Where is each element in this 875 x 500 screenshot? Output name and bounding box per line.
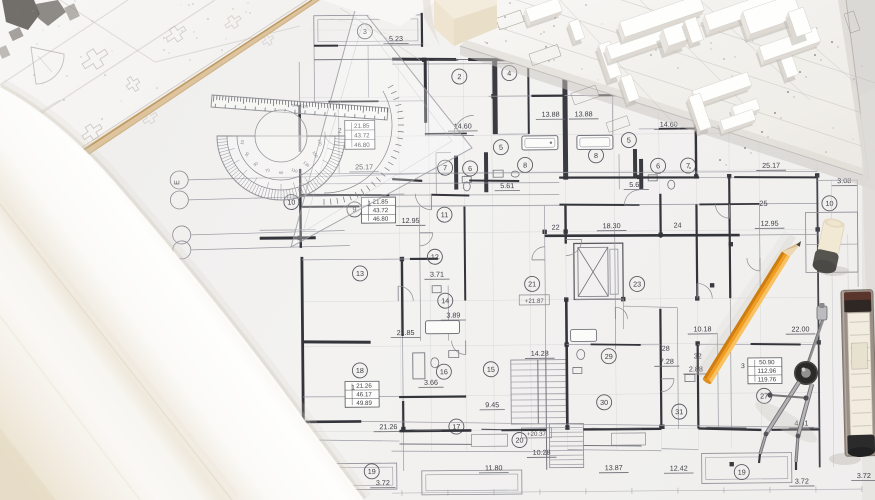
- svg-text:25.17: 25.17: [762, 161, 780, 170]
- svg-text:22.00: 22.00: [791, 324, 809, 333]
- svg-text:24: 24: [674, 221, 682, 230]
- svg-text:50.90: 50.90: [759, 359, 775, 366]
- svg-text:19: 19: [738, 468, 746, 477]
- svg-text:16: 16: [440, 367, 448, 376]
- svg-text:8: 8: [594, 151, 598, 160]
- svg-text:14: 14: [441, 296, 449, 305]
- svg-text:112.96: 112.96: [758, 368, 777, 375]
- svg-text:3.89: 3.89: [446, 311, 460, 320]
- svg-text:E: E: [174, 180, 181, 185]
- svg-text:119.76: 119.76: [758, 376, 777, 383]
- svg-text:31: 31: [675, 407, 683, 416]
- svg-text:6: 6: [468, 164, 472, 173]
- svg-text:10.18: 10.18: [693, 324, 711, 333]
- svg-text:13.88: 13.88: [575, 109, 593, 118]
- svg-text:15: 15: [487, 365, 495, 374]
- svg-text:13: 13: [356, 269, 364, 278]
- svg-text:9.45: 9.45: [485, 400, 499, 409]
- svg-text:1: 1: [351, 384, 355, 391]
- svg-text:3.71: 3.71: [430, 270, 444, 279]
- svg-text:10: 10: [825, 199, 833, 208]
- svg-text:5: 5: [499, 143, 503, 152]
- svg-text:21.26: 21.26: [356, 383, 372, 390]
- svg-text:22: 22: [552, 223, 560, 232]
- svg-text:+21.87: +21.87: [525, 298, 545, 305]
- svg-text:12: 12: [431, 252, 439, 261]
- svg-text:49.89: 49.89: [356, 400, 372, 407]
- svg-text:8: 8: [523, 161, 527, 170]
- svg-text:3: 3: [741, 363, 745, 370]
- svg-text:5.61: 5.61: [629, 180, 643, 189]
- svg-text:19: 19: [368, 467, 376, 476]
- svg-text:18.30: 18.30: [603, 221, 621, 230]
- svg-text:13.88: 13.88: [542, 110, 560, 119]
- svg-text:3.72: 3.72: [857, 471, 871, 480]
- svg-text:29: 29: [605, 352, 613, 361]
- svg-text:12.42: 12.42: [670, 464, 688, 473]
- svg-text:7: 7: [443, 163, 447, 172]
- svg-text:21.85: 21.85: [397, 328, 415, 337]
- svg-text:46.80: 46.80: [373, 216, 389, 223]
- svg-text:30: 30: [600, 398, 608, 407]
- svg-text:7.28: 7.28: [660, 357, 674, 366]
- svg-text:18: 18: [356, 366, 364, 375]
- svg-text:12.95: 12.95: [761, 219, 779, 228]
- svg-text:3.72: 3.72: [795, 476, 809, 485]
- svg-text:10.28: 10.28: [533, 448, 551, 457]
- svg-text:5.61: 5.61: [500, 181, 514, 190]
- svg-text:27: 27: [760, 391, 768, 400]
- svg-text:13.87: 13.87: [605, 463, 623, 472]
- svg-text:20: 20: [515, 436, 523, 445]
- svg-text:6: 6: [656, 161, 660, 170]
- svg-text:11: 11: [441, 210, 449, 219]
- svg-text:23: 23: [633, 280, 641, 289]
- svg-text:21: 21: [528, 279, 536, 288]
- svg-text:28: 28: [662, 344, 670, 353]
- svg-text:46.17: 46.17: [356, 391, 372, 398]
- svg-text:11.80: 11.80: [485, 463, 503, 472]
- svg-text:3.72: 3.72: [376, 478, 390, 487]
- svg-text:2: 2: [457, 72, 461, 81]
- svg-text:21.26: 21.26: [379, 422, 397, 431]
- svg-text:+20.37: +20.37: [527, 431, 547, 438]
- svg-text:90: 90: [279, 170, 284, 175]
- svg-text:5: 5: [627, 136, 631, 145]
- svg-text:25: 25: [759, 199, 767, 208]
- svg-text:12.95: 12.95: [402, 216, 420, 225]
- svg-text:3.66: 3.66: [424, 378, 438, 387]
- svg-text:43.72: 43.72: [373, 207, 389, 214]
